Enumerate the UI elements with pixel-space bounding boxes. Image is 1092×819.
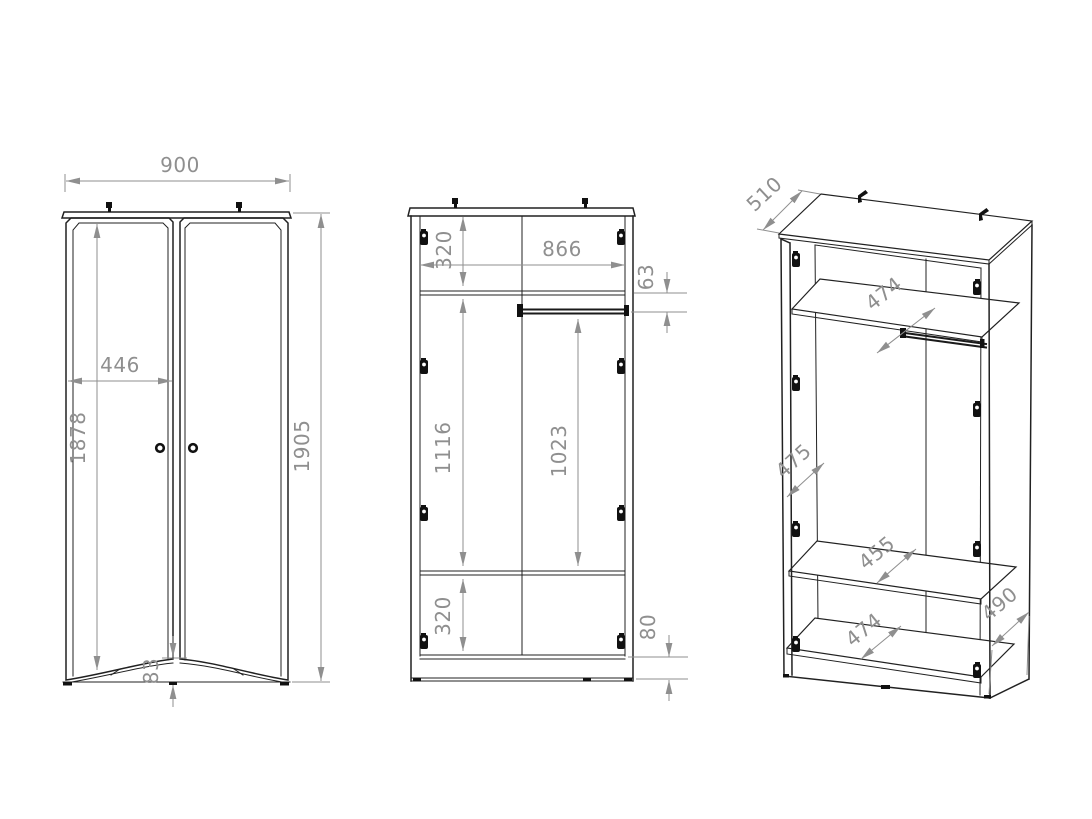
right-side-panel [989, 225, 1032, 698]
rail-bracket-icon [624, 305, 629, 316]
rail-bracket-icon [980, 339, 985, 348]
hinge-icon [617, 633, 625, 649]
hinge-icon [792, 521, 800, 537]
dim-label-446: 446 [100, 353, 140, 377]
dim-label-1878: 1878 [66, 412, 90, 465]
rail-bracket-icon [517, 304, 523, 317]
top-board [62, 212, 291, 218]
dim-hanging-clearance: 1023 [547, 319, 578, 566]
top-panel [779, 194, 1032, 260]
hinge-icon [420, 229, 428, 245]
hinge-icon [617, 505, 625, 521]
dim-label-510: 510 [742, 172, 787, 217]
dim-label-320-bottom: 320 [431, 596, 455, 636]
foot [624, 678, 632, 682]
dim-label-83: 83 [139, 658, 163, 684]
dim-overall-width: 900 [65, 153, 290, 192]
dim-plinth-height: 80 [628, 614, 688, 701]
foot [280, 682, 289, 686]
wall-bracket-icon [582, 198, 588, 208]
right-door-panel-line [185, 223, 281, 676]
wall-bracket-icon [452, 198, 458, 208]
foot [783, 674, 789, 678]
hinge-icon [792, 375, 800, 391]
hinge-icon [420, 358, 428, 374]
dim-total-height: 1905 [290, 213, 330, 682]
dim-label-866: 866 [542, 237, 582, 261]
dim-label-1023: 1023 [547, 425, 571, 478]
top-board [408, 208, 635, 216]
dim-lower-side-depth: 490 [977, 582, 1029, 694]
hinge-icon [792, 636, 800, 652]
dim-door-width: 446 [68, 353, 172, 381]
foot [583, 678, 591, 682]
right-door-knob [189, 444, 197, 452]
technical-drawing-page: 900 446 1878 1905 83 [0, 0, 1092, 819]
dim-door-height: 1878 [66, 224, 97, 670]
dim-top-compartment: 320 [432, 217, 463, 286]
front-view-interior: 320 866 63 1116 1023 320 [408, 198, 688, 701]
wall-bracket-icon [236, 202, 242, 212]
dim-label-63: 63 [634, 264, 658, 290]
hinge-icon [973, 541, 981, 557]
foot [169, 682, 177, 685]
hinge-icon [617, 229, 625, 245]
middle-shelf [789, 541, 1016, 599]
hinge-icon [420, 505, 428, 521]
base-edge [411, 678, 633, 681]
wall-bracket-icon [106, 202, 112, 212]
dim-upper-side-depth: 475 [771, 439, 824, 497]
bottom-board [420, 655, 625, 659]
dim-bottom-compartment: 320 [431, 579, 463, 651]
hinge-icon [973, 662, 981, 678]
hinge-icon [420, 633, 428, 649]
front-view-doors-closed: 900 446 1878 1905 83 [62, 153, 330, 707]
dim-label-320-top: 320 [432, 230, 456, 270]
dim-label-1905: 1905 [290, 420, 314, 473]
isometric-view: 510 474 475 455 474 490 [742, 172, 1032, 699]
hinge-icon [792, 251, 800, 267]
left-door-knob [156, 444, 164, 452]
hinge-icon [973, 279, 981, 295]
foot [881, 685, 890, 689]
dim-label-900: 900 [160, 153, 200, 177]
hinge-icon [973, 401, 981, 417]
hanging-rail [523, 310, 626, 314]
dim-label-80: 80 [636, 614, 660, 640]
hinge-icon [617, 358, 625, 374]
dim-label-1116: 1116 [431, 422, 455, 475]
wardrobe-dimension-drawing: 900 446 1878 1905 83 [0, 0, 1092, 819]
foot [984, 695, 991, 699]
dim-left-compartment: 1116 [431, 299, 463, 566]
foot [63, 682, 72, 686]
right-door-curve-edge [180, 663, 288, 683]
dim-rail-offset: 63 [631, 264, 687, 333]
foot [413, 678, 421, 682]
